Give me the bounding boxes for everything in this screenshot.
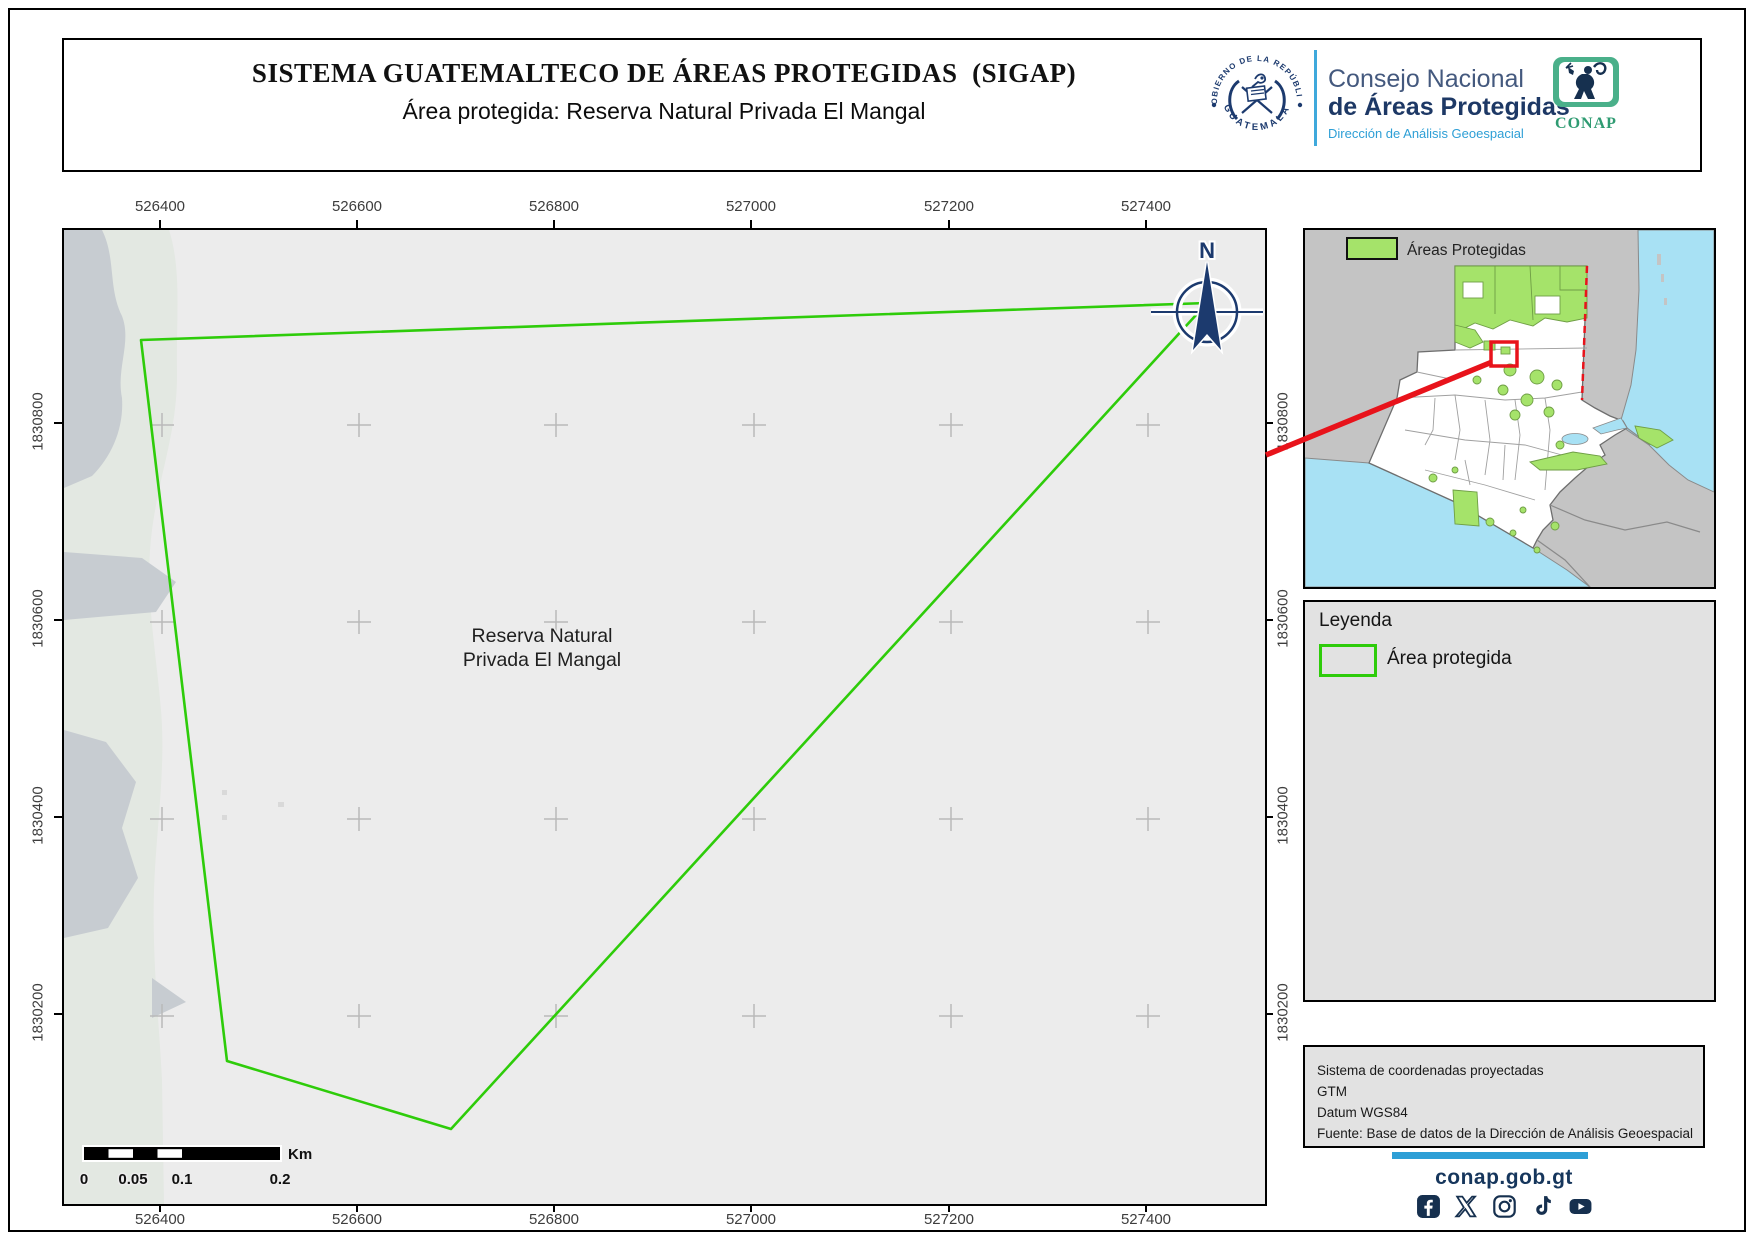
x-axis-label: 527200 bbox=[904, 198, 994, 215]
north-label: N bbox=[1199, 238, 1215, 263]
inset-legend-swatch bbox=[1347, 238, 1397, 259]
axis-tick bbox=[356, 220, 358, 228]
biosphere-hole bbox=[1463, 282, 1483, 298]
council-line2: de Áreas Protegidas bbox=[1328, 94, 1570, 120]
axis-tick bbox=[54, 816, 62, 818]
scale-label-02: 0.2 bbox=[270, 1171, 291, 1188]
biosphere-hole bbox=[1535, 296, 1560, 314]
water-shape-tip bbox=[152, 978, 186, 1018]
y-axis-label: 1830200 bbox=[30, 968, 47, 1058]
main-map-frame: Reserva Natural Privada El Mangal N 0 0.… bbox=[62, 228, 1267, 1206]
scale-label-01: 0.1 bbox=[172, 1171, 193, 1188]
council-line1: Consejo Nacional bbox=[1328, 66, 1570, 92]
government-seal-icon: GOBIERNO DE LA REPÚBLICA GUATEMALA bbox=[1202, 44, 1312, 154]
axis-tick bbox=[1145, 220, 1147, 228]
x-icon bbox=[1454, 1194, 1479, 1219]
x-axis-label: 526800 bbox=[509, 198, 599, 215]
footer-accent-bar bbox=[1392, 1152, 1588, 1159]
axis-tick bbox=[54, 1013, 62, 1015]
grid-crosses bbox=[150, 413, 1160, 1028]
axis-tick bbox=[159, 220, 161, 228]
y-axis-label: 1830200 bbox=[1275, 968, 1292, 1058]
x-axis-label: 527000 bbox=[706, 1211, 796, 1228]
axis-tick bbox=[1265, 1013, 1273, 1015]
map-speck bbox=[222, 815, 227, 820]
y-axis-label: 1830600 bbox=[1275, 574, 1292, 664]
conap-wordmark: CONAP bbox=[1550, 115, 1622, 133]
map-sheet: SISTEMA GUATEMALTECO DE ÁREAS PROTEGIDAS… bbox=[0, 0, 1754, 1240]
axis-tick bbox=[1265, 619, 1273, 621]
y-axis-label: 1830800 bbox=[1275, 377, 1292, 467]
seal-dot-right bbox=[1298, 103, 1302, 107]
inset-legend-label: Áreas Protegidas bbox=[1407, 242, 1526, 259]
north-arrow-icon: N bbox=[1151, 238, 1263, 350]
scale-label-005: 0.05 bbox=[118, 1171, 147, 1188]
scale-unit: Km bbox=[288, 1146, 312, 1163]
lake-izabal bbox=[1562, 434, 1588, 445]
axis-tick bbox=[1265, 422, 1273, 424]
scale-label-0: 0 bbox=[80, 1171, 88, 1188]
y-axis-label: 1830400 bbox=[1275, 771, 1292, 861]
y-axis-label: 1830600 bbox=[30, 574, 47, 664]
coordinate-info-box: Sistema de coordenadas proyectadas GTM D… bbox=[1303, 1045, 1705, 1148]
x-axis-label: 526400 bbox=[115, 1211, 205, 1228]
area-label-line2: Privada El Mangal bbox=[463, 649, 621, 671]
x-axis-label: 527200 bbox=[904, 1211, 994, 1228]
youtube-icon bbox=[1568, 1194, 1593, 1219]
x-axis-label: 527400 bbox=[1101, 1211, 1191, 1228]
axis-tick bbox=[750, 220, 752, 228]
axis-tick bbox=[1265, 816, 1273, 818]
map-speck bbox=[222, 790, 227, 795]
x-axis-label: 526400 bbox=[115, 198, 205, 215]
caribbean-sea bbox=[1621, 230, 1714, 492]
main-map-canvas: Reserva Natural Privada El Mangal N 0 0.… bbox=[64, 230, 1265, 1204]
island bbox=[1664, 298, 1667, 305]
water-shape-middle bbox=[64, 552, 176, 620]
inset-canvas: Áreas Protegidas bbox=[1305, 230, 1714, 587]
x-axis-label: 527400 bbox=[1101, 198, 1191, 215]
x-axis-label: 526800 bbox=[509, 1211, 599, 1228]
y-axis-label: 1830800 bbox=[30, 377, 47, 467]
island bbox=[1657, 254, 1661, 265]
legend-item-label: Área protegida bbox=[1387, 648, 1512, 670]
social-icons-row bbox=[1303, 1194, 1705, 1219]
tiktok-icon bbox=[1530, 1194, 1555, 1219]
protected-area-boundary bbox=[141, 303, 1207, 1129]
legend-title: Leyenda bbox=[1319, 610, 1392, 632]
title-box: SISTEMA GUATEMALTECO DE ÁREAS PROTEGIDAS… bbox=[62, 38, 1702, 172]
council-line3: Dirección de Análisis Geoespacial bbox=[1328, 127, 1570, 141]
council-wordmark: Consejo Nacional de Áreas Protegidas Dir… bbox=[1328, 66, 1570, 140]
x-axis-label: 526600 bbox=[312, 198, 402, 215]
page-title: SISTEMA GUATEMALTECO DE ÁREAS PROTEGIDAS… bbox=[124, 58, 1204, 89]
map-speck bbox=[278, 802, 284, 807]
page-subtitle: Área protegida: Reserva Natural Privada … bbox=[124, 98, 1204, 125]
axis-tick bbox=[54, 619, 62, 621]
axis-tick bbox=[553, 220, 555, 228]
conap-logo: CONAP bbox=[1550, 56, 1622, 133]
info-line: Fuente: Base de datos de la Dirección de… bbox=[1317, 1124, 1703, 1145]
inset-locator-map: Áreas Protegidas bbox=[1303, 228, 1716, 589]
y-axis-label: 1830400 bbox=[30, 771, 47, 861]
x-axis-label: 526600 bbox=[312, 1211, 402, 1228]
island bbox=[1661, 274, 1664, 282]
info-line: GTM bbox=[1317, 1082, 1703, 1103]
facebook-icon bbox=[1416, 1194, 1441, 1219]
seal-dot-left bbox=[1212, 103, 1216, 107]
axis-tick bbox=[948, 220, 950, 228]
legend-swatch bbox=[1319, 644, 1377, 677]
info-line: Datum WGS84 bbox=[1317, 1103, 1703, 1124]
conap-monkey-icon bbox=[1552, 56, 1620, 108]
seal-emblem bbox=[1230, 74, 1285, 119]
instagram-icon bbox=[1492, 1194, 1517, 1219]
legend-panel: Leyenda Área protegida bbox=[1303, 600, 1716, 1002]
area-label-line1: Reserva Natural bbox=[472, 625, 613, 647]
axis-tick bbox=[54, 422, 62, 424]
x-axis-label: 527000 bbox=[706, 198, 796, 215]
logo-divider bbox=[1314, 50, 1317, 146]
website-url: conap.gob.gt bbox=[1303, 1166, 1705, 1190]
info-line: Sistema de coordenadas proyectadas bbox=[1317, 1061, 1703, 1082]
title-block: SISTEMA GUATEMALTECO DE ÁREAS PROTEGIDAS… bbox=[124, 58, 1204, 125]
